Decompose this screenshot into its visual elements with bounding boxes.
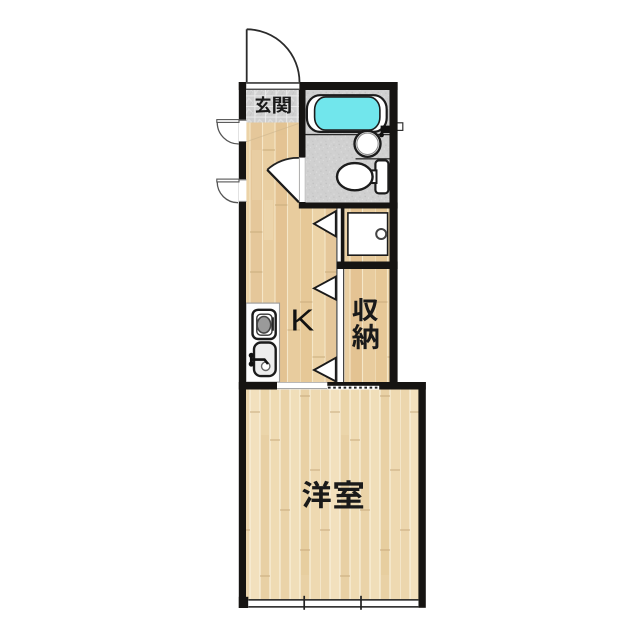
svg-text:K: K (290, 304, 314, 338)
